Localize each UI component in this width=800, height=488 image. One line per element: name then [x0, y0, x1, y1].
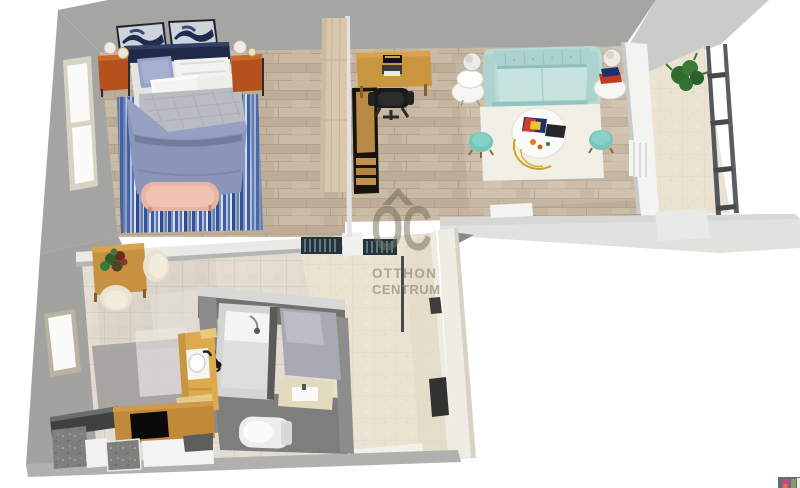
svg-text:CENTRUM: CENTRUM: [372, 282, 441, 297]
svg-text:OC: OC: [371, 195, 432, 265]
svg-text:OTTHON: OTTHON: [372, 266, 437, 281]
